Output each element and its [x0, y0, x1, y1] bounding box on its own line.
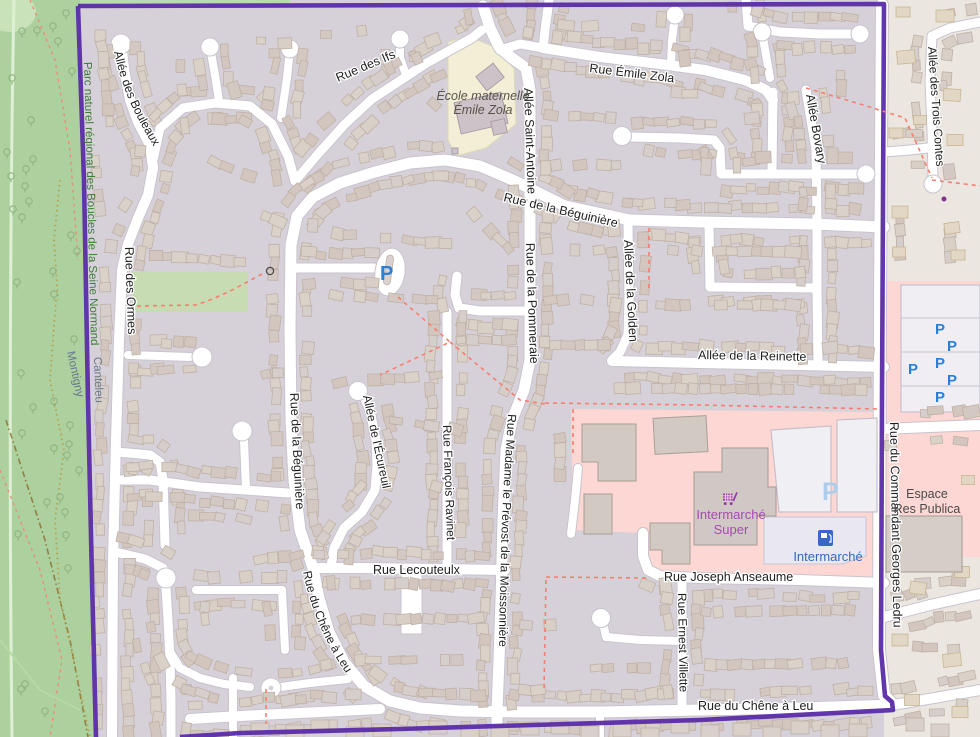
- svg-text:P: P: [935, 321, 945, 338]
- svg-text:P: P: [935, 355, 945, 372]
- svg-text:Canteleu: Canteleu: [91, 357, 105, 403]
- svg-text:Émile Zola: Émile Zola: [453, 102, 512, 117]
- svg-text:Res Publica: Res Publica: [894, 502, 961, 516]
- svg-text:Rue Ernest Villette: Rue Ernest Villette: [675, 593, 691, 693]
- svg-text:P: P: [380, 263, 393, 285]
- svg-text:P: P: [935, 389, 945, 406]
- svg-text:Super: Super: [714, 522, 749, 537]
- svg-text:Intermarché: Intermarché: [793, 549, 862, 564]
- svg-text:École maternelle: École maternelle: [436, 88, 529, 103]
- svg-text:Rue Lecouteulx: Rue Lecouteulx: [373, 563, 461, 577]
- svg-text:P: P: [947, 338, 957, 355]
- svg-text:P: P: [822, 478, 839, 506]
- svg-text:Rue du Chêne à Leu: Rue du Chêne à Leu: [698, 699, 813, 713]
- svg-text:Intermarché: Intermarché: [696, 507, 765, 522]
- svg-text:P: P: [947, 372, 957, 389]
- svg-text:Allée de la Reinette: Allée de la Reinette: [698, 348, 807, 364]
- svg-text:Rue Joseph Anseaume: Rue Joseph Anseaume: [664, 570, 793, 584]
- svg-text:P: P: [908, 361, 918, 378]
- svg-text:Espace: Espace: [906, 487, 948, 501]
